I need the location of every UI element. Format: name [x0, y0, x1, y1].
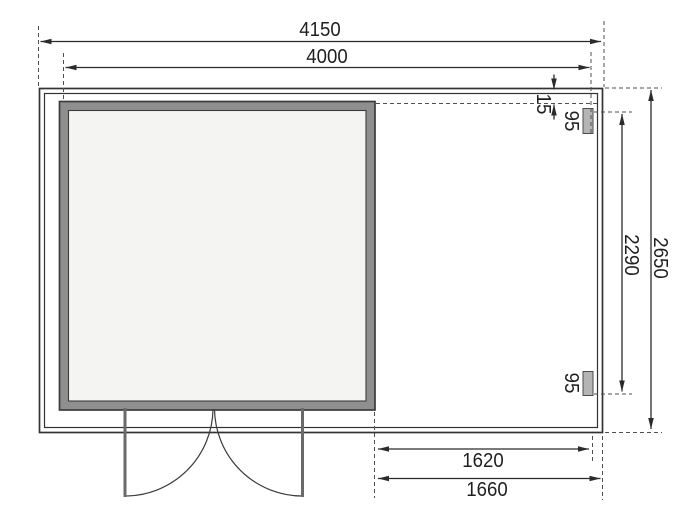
dim-label-1620: 1620 — [462, 451, 503, 471]
dim-label-1660: 1660 — [466, 480, 507, 500]
room-interior — [69, 111, 367, 402]
dim-label-4150: 4150 — [299, 20, 340, 40]
room — [60, 102, 376, 411]
dim-label-95-top: 95 — [561, 111, 581, 132]
dim-label-2290: 2290 — [621, 234, 641, 275]
dim-label-2650: 2650 — [650, 237, 670, 278]
floor-plan-canvas: 4150 4000 15 95 2290 2650 95 1620 1660 — [0, 0, 700, 525]
dim-label-15: 15 — [533, 94, 553, 115]
dim-label-95-bottom: 95 — [561, 373, 581, 394]
post-bottom-right — [583, 372, 593, 396]
dim-label-4000: 4000 — [306, 47, 347, 67]
floor-plan-drawing — [0, 0, 700, 525]
